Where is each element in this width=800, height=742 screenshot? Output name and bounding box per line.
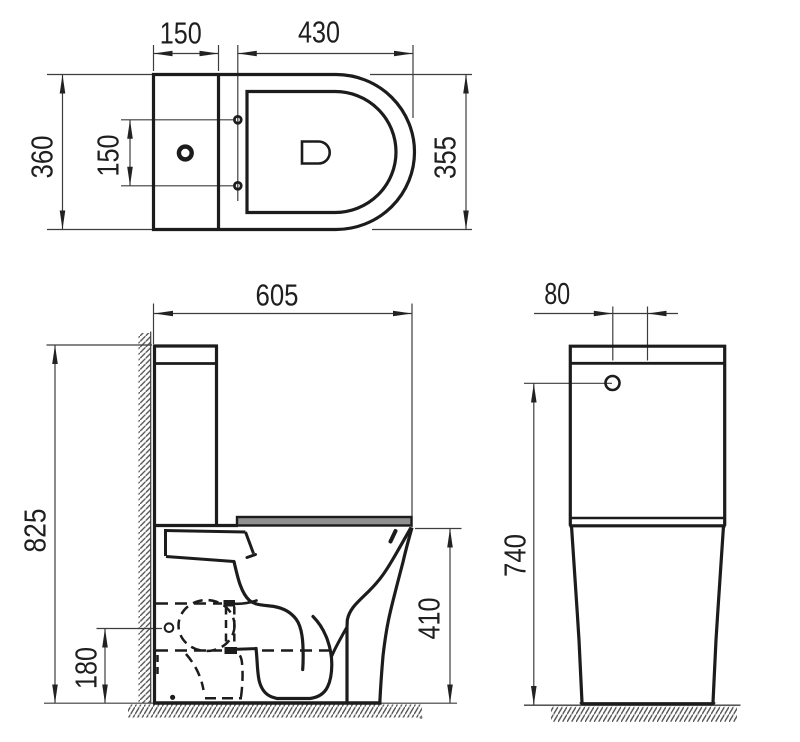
svg-text:430: 430: [298, 15, 340, 49]
svg-text:825: 825: [18, 509, 52, 553]
svg-text:150: 150: [160, 17, 202, 51]
svg-text:150: 150: [91, 135, 125, 177]
svg-text:360: 360: [25, 136, 59, 179]
svg-text:355: 355: [428, 136, 462, 179]
svg-text:410: 410: [412, 598, 446, 640]
svg-text:80: 80: [544, 277, 570, 311]
svg-text:740: 740: [498, 534, 532, 577]
svg-text:180: 180: [69, 647, 103, 689]
svg-text:605: 605: [256, 278, 299, 312]
